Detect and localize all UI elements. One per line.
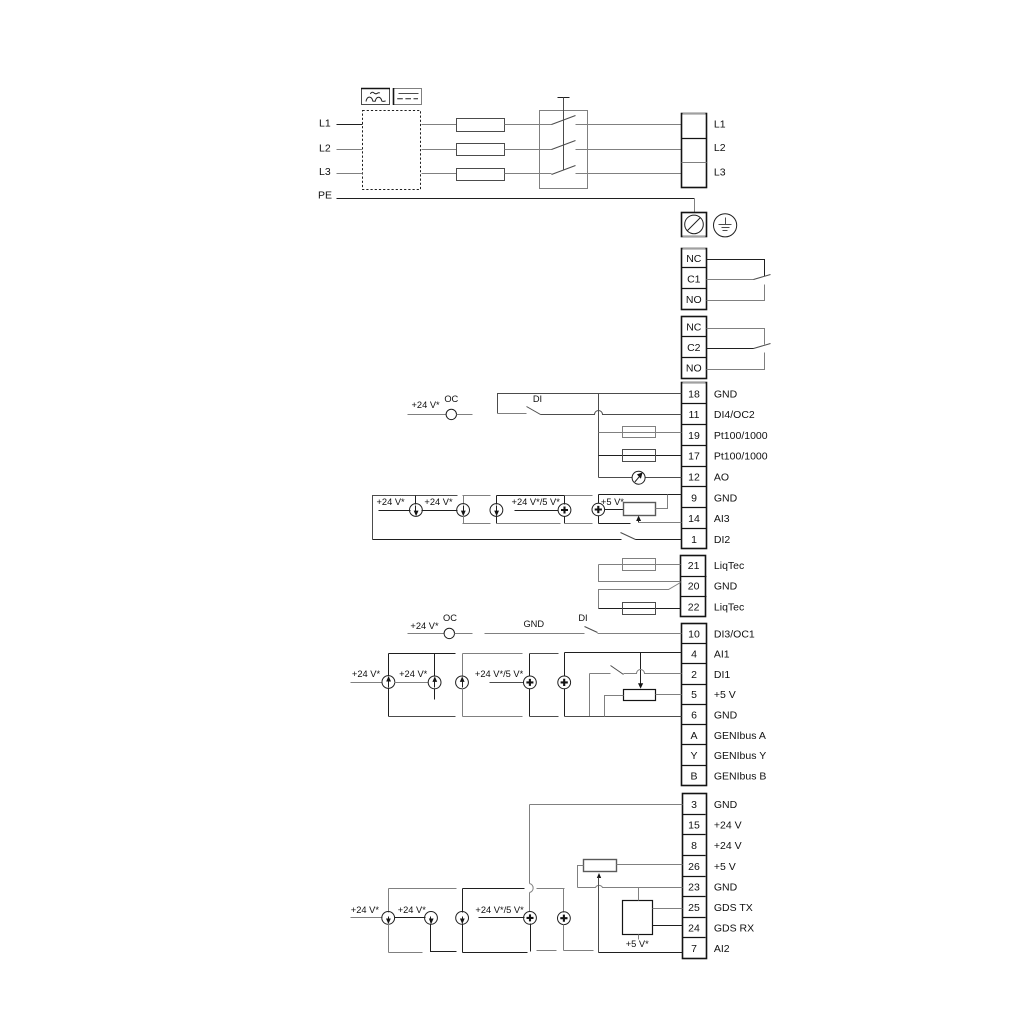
svg-text:L1: L1 — [319, 118, 331, 130]
svg-text:DI1: DI1 — [714, 669, 731, 681]
svg-text:GND: GND — [523, 619, 544, 629]
svg-text:+24 V*: +24 V* — [412, 400, 441, 410]
svg-text:NO: NO — [686, 294, 702, 306]
svg-text:7: 7 — [691, 943, 697, 955]
svg-text:NO: NO — [686, 363, 702, 375]
svg-text:6: 6 — [691, 710, 697, 722]
svg-text:DI: DI — [578, 613, 587, 623]
svg-text:+24 V*/5 V*: +24 V*/5 V* — [512, 497, 561, 507]
svg-text:C2: C2 — [687, 342, 701, 354]
svg-text:+24 V*: +24 V* — [398, 905, 427, 915]
svg-text:GENIbus A: GENIbus A — [714, 730, 766, 742]
svg-text:GDS TX: GDS TX — [714, 902, 753, 914]
svg-text:GND: GND — [714, 581, 738, 593]
svg-text:+5 V*: +5 V* — [601, 497, 624, 507]
svg-text:NC: NC — [686, 253, 702, 265]
svg-text:1: 1 — [691, 534, 697, 546]
svg-text:C1: C1 — [687, 273, 701, 285]
svg-text:+24 V*: +24 V* — [424, 497, 453, 507]
svg-text:L2: L2 — [319, 143, 331, 155]
svg-text:24: 24 — [688, 923, 700, 935]
svg-text:GND: GND — [714, 388, 738, 400]
svg-text:9: 9 — [691, 492, 697, 504]
svg-text:20: 20 — [688, 581, 700, 593]
svg-text:19: 19 — [688, 430, 700, 442]
svg-text:+24 V*: +24 V* — [410, 621, 439, 631]
svg-text:PE: PE — [318, 190, 332, 202]
svg-text:LiqTec: LiqTec — [714, 560, 744, 572]
svg-text:5: 5 — [691, 689, 697, 701]
svg-text:AI3: AI3 — [714, 513, 730, 525]
svg-text:L2: L2 — [714, 142, 726, 154]
svg-text:AI2: AI2 — [714, 943, 730, 955]
svg-text:DI4/OC2: DI4/OC2 — [714, 409, 755, 421]
svg-text:GND: GND — [714, 710, 738, 722]
svg-text:LiqTec: LiqTec — [714, 601, 744, 613]
svg-text:A: A — [690, 730, 697, 742]
svg-text:+24 V: +24 V — [714, 820, 742, 832]
svg-text:B: B — [690, 770, 697, 782]
svg-text:14: 14 — [688, 513, 700, 525]
svg-text:+24 V*/5 V*: +24 V*/5 V* — [475, 669, 524, 679]
svg-text:GENIbus Y: GENIbus Y — [714, 750, 766, 762]
svg-text:+24 V*/5 V*: +24 V*/5 V* — [475, 905, 524, 915]
svg-text:OC: OC — [444, 394, 458, 404]
svg-text:21: 21 — [688, 560, 700, 572]
svg-text:+24 V*: +24 V* — [351, 905, 380, 915]
svg-text:L1: L1 — [714, 119, 726, 131]
svg-text:12: 12 — [688, 472, 700, 484]
svg-text:+24 V: +24 V — [714, 840, 742, 852]
svg-text:25: 25 — [688, 902, 700, 914]
svg-text:18: 18 — [688, 388, 700, 400]
svg-text:AI1: AI1 — [714, 649, 730, 661]
svg-text:AO: AO — [714, 472, 729, 484]
svg-text:+24 V*: +24 V* — [377, 497, 406, 507]
svg-text:L3: L3 — [714, 167, 726, 179]
svg-text:Y: Y — [690, 750, 697, 762]
svg-text:GND: GND — [714, 492, 738, 504]
svg-text:GDS RX: GDS RX — [714, 923, 754, 935]
svg-text:DI: DI — [533, 394, 542, 404]
svg-text:GND: GND — [714, 799, 738, 811]
svg-text:26: 26 — [688, 861, 700, 873]
svg-text:23: 23 — [688, 881, 700, 893]
svg-text:DI2: DI2 — [714, 534, 731, 546]
svg-text:L3: L3 — [319, 166, 331, 178]
svg-text:+24 V*: +24 V* — [352, 669, 381, 679]
svg-text:+5 V: +5 V — [714, 689, 736, 701]
svg-text:NC: NC — [686, 321, 702, 333]
svg-text:3: 3 — [691, 799, 697, 811]
svg-text:8: 8 — [691, 840, 697, 852]
svg-text:15: 15 — [688, 820, 700, 832]
svg-text:2: 2 — [691, 669, 697, 681]
svg-text:4: 4 — [691, 649, 697, 661]
svg-text:10: 10 — [688, 628, 700, 640]
svg-text:Pt100/1000: Pt100/1000 — [714, 430, 768, 442]
svg-text:22: 22 — [688, 601, 700, 613]
svg-text:Pt100/1000: Pt100/1000 — [714, 451, 768, 463]
svg-text:OC: OC — [443, 613, 457, 623]
svg-text:17: 17 — [688, 451, 700, 463]
svg-text:11: 11 — [689, 409, 700, 421]
svg-text:+5 V: +5 V — [714, 861, 736, 873]
svg-text:GND: GND — [714, 881, 738, 893]
svg-text:GENIbus B: GENIbus B — [714, 770, 767, 782]
svg-text:+24 V*: +24 V* — [399, 669, 428, 679]
svg-text:DI3/OC1: DI3/OC1 — [714, 628, 755, 640]
svg-text:+5 V*: +5 V* — [626, 939, 649, 949]
